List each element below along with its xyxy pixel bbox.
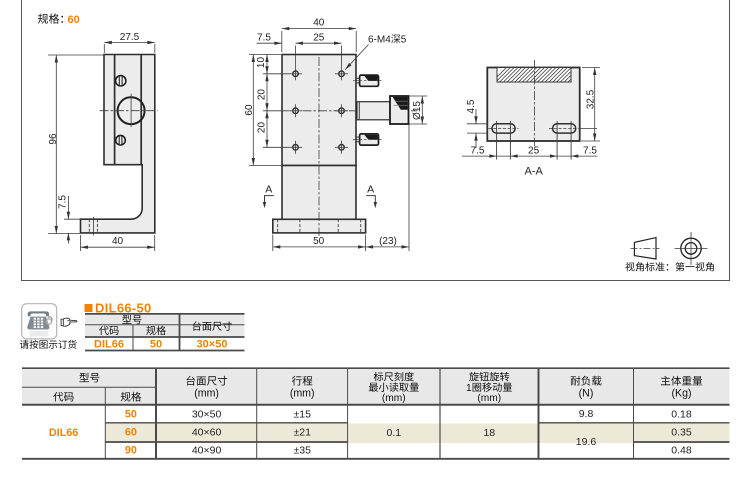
svg-text:0.35: 0.35 bbox=[671, 427, 692, 439]
svg-text:(mm): (mm) bbox=[290, 387, 315, 399]
svg-text:(mm): (mm) bbox=[194, 387, 219, 399]
svg-text:(mm): (mm) bbox=[382, 393, 406, 404]
svg-text:0.48: 0.48 bbox=[671, 445, 692, 457]
svg-text:60: 60 bbox=[68, 14, 80, 26]
svg-text:40×60: 40×60 bbox=[192, 427, 222, 439]
svg-text:9.8: 9.8 bbox=[579, 408, 594, 420]
svg-text:(N): (N) bbox=[579, 387, 594, 399]
svg-text:50: 50 bbox=[125, 408, 137, 420]
svg-text:50: 50 bbox=[313, 236, 325, 247]
svg-text:0.1: 0.1 bbox=[386, 427, 401, 439]
svg-text:25: 25 bbox=[313, 32, 325, 43]
svg-text:30×50: 30×50 bbox=[197, 339, 228, 351]
svg-text:25: 25 bbox=[528, 145, 540, 156]
svg-text:±15: ±15 bbox=[293, 408, 311, 420]
svg-text:6-M4: 6-M4 bbox=[368, 35, 391, 46]
svg-text:27.5: 27.5 bbox=[120, 32, 140, 43]
svg-text:20: 20 bbox=[256, 122, 267, 134]
svg-text:30×50: 30×50 bbox=[192, 408, 222, 420]
svg-text:±35: ±35 bbox=[293, 445, 311, 457]
svg-text:20: 20 bbox=[256, 89, 267, 101]
svg-text:A: A bbox=[367, 183, 374, 195]
svg-text:90: 90 bbox=[125, 445, 137, 457]
svg-text:(23): (23) bbox=[379, 236, 397, 247]
svg-text:50: 50 bbox=[150, 339, 162, 351]
svg-text:DIL66: DIL66 bbox=[94, 339, 124, 351]
svg-text:40: 40 bbox=[112, 236, 124, 247]
svg-text:7.5: 7.5 bbox=[583, 145, 597, 156]
svg-text:DIL66: DIL66 bbox=[49, 427, 78, 439]
svg-text:18: 18 bbox=[483, 427, 495, 439]
svg-text:19.6: 19.6 bbox=[576, 436, 597, 448]
svg-text:96: 96 bbox=[48, 133, 59, 145]
svg-text:(mm): (mm) bbox=[477, 393, 501, 404]
svg-text:4.5: 4.5 bbox=[466, 99, 477, 113]
svg-text:7.5: 7.5 bbox=[257, 32, 271, 43]
svg-text:40: 40 bbox=[313, 18, 325, 29]
svg-text:A-A: A-A bbox=[525, 166, 544, 178]
svg-text:1: 1 bbox=[466, 383, 472, 394]
svg-text:±21: ±21 bbox=[293, 427, 311, 439]
svg-text:60: 60 bbox=[244, 104, 255, 116]
svg-text:32.5: 32.5 bbox=[586, 89, 597, 109]
svg-text:5: 5 bbox=[401, 35, 407, 46]
svg-text:Ø15: Ø15 bbox=[412, 101, 423, 120]
svg-text:60: 60 bbox=[125, 427, 137, 439]
svg-text:10: 10 bbox=[256, 57, 267, 69]
svg-text:0.18: 0.18 bbox=[671, 408, 692, 420]
svg-text:40×90: 40×90 bbox=[192, 445, 222, 457]
svg-text:(Kg): (Kg) bbox=[671, 387, 691, 399]
svg-text:7.5: 7.5 bbox=[471, 145, 485, 156]
svg-text:7.5: 7.5 bbox=[57, 195, 68, 209]
svg-text:A: A bbox=[265, 183, 272, 195]
